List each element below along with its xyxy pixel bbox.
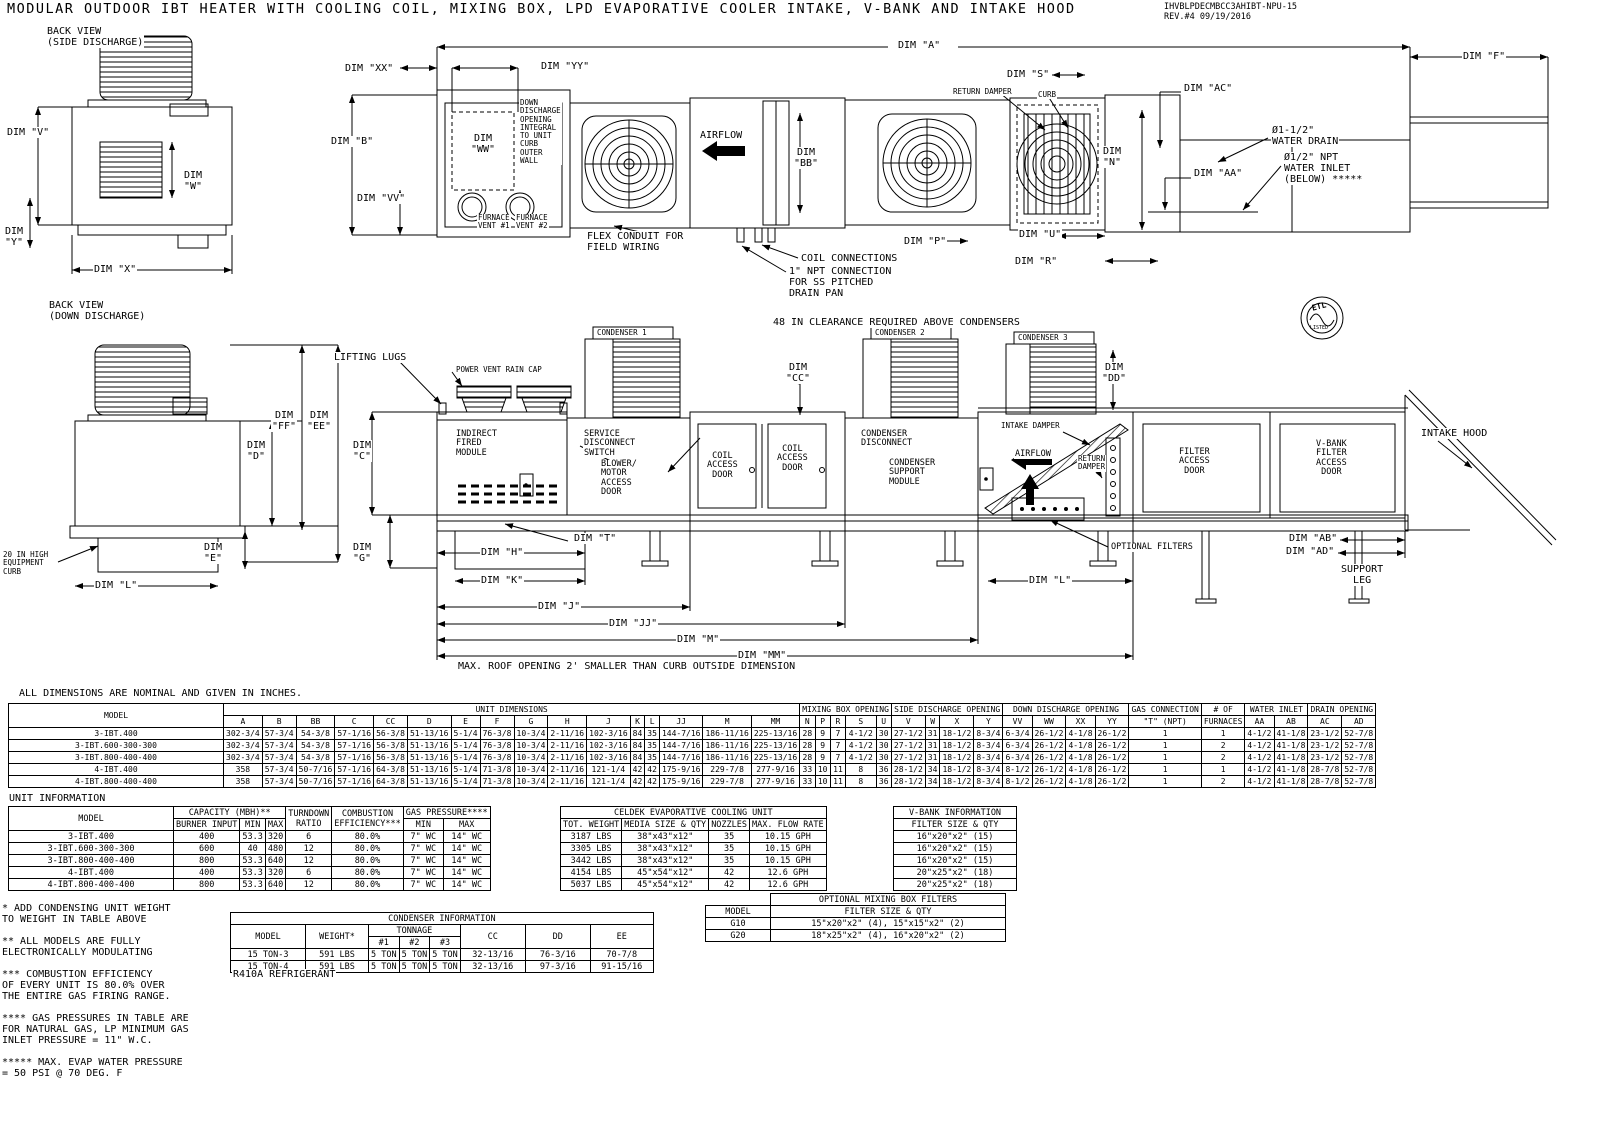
table-cell: 10.15 GPH <box>750 831 827 843</box>
table-cell: 33 <box>800 776 815 788</box>
gas-pressure-group-header: GAS PRESSURE**** <box>403 807 490 819</box>
column-header: K <box>630 716 645 728</box>
table-cell: 52-7/8 <box>1342 764 1376 776</box>
table-cell: 53.3 <box>240 867 265 879</box>
table-cell: 32-13/16 <box>460 949 525 961</box>
model-header: MODEL <box>231 925 306 949</box>
dim-aa-label: DIM "AA" <box>1193 168 1243 179</box>
curb-label: CURB <box>1037 91 1057 99</box>
table-cell: 35 <box>645 740 660 752</box>
table-cell: 42 <box>645 764 660 776</box>
mixing-box-filters-body: G1015"x20"x2" (4), 15"x15"x2" (2)G2018"x… <box>706 918 1006 942</box>
column-header: TOT. WEIGHT <box>561 819 622 831</box>
table-cell: 38"x43"x12" <box>622 855 709 867</box>
table-cell: 5037 LBS <box>561 879 622 891</box>
table-cell: 5-1/4 <box>451 740 480 752</box>
roof-opening-note: MAX. ROOF OPENING 2' SMALLER THAN CURB O… <box>457 661 796 672</box>
table-cell: 4-IBT.400 <box>9 867 174 879</box>
table-cell: 35 <box>645 728 660 740</box>
filter-size-header: FILTER SIZE & QTY <box>771 906 1006 918</box>
column-header: BB <box>296 716 335 728</box>
table-cell: 38"x43"x12" <box>622 831 709 843</box>
column-header: #1 <box>369 937 400 949</box>
column-header: Y <box>974 716 1003 728</box>
table-cell: 30 <box>876 752 891 764</box>
footnote-2: ** ALL MODELS ARE FULLY ELECTRONICALLY M… <box>2 936 237 958</box>
condenser-support-module-label: CONDENSER SUPPORT MODULE <box>888 459 936 487</box>
table-cell: 10-3/4 <box>514 764 548 776</box>
table-cell: 2-11/16 <box>548 740 587 752</box>
column-header: U <box>876 716 891 728</box>
dim-n-label: DIM "N" <box>1102 146 1122 168</box>
table-cell: 358 <box>224 764 263 776</box>
indirect-fired-module-label: INDIRECT FIRED MODULE <box>455 430 498 458</box>
vbank-access-door-label: V-BANK FILTER ACCESS DOOR <box>1315 440 1348 477</box>
table-cell: 10-3/4 <box>514 776 548 788</box>
table-cell: 18-1/2 <box>940 764 974 776</box>
table-cell: 12 <box>286 843 332 855</box>
flex-conduit-note: FLEX CONDUIT FOR FIELD WIRING <box>586 231 684 253</box>
water-inlet-note: Ø1/2" NPT WATER INLET (BELOW) ***** <box>1283 152 1363 185</box>
table-cell: 11 <box>830 776 845 788</box>
table-cell: 5 TON <box>369 949 400 961</box>
column-header: M <box>703 716 751 728</box>
table-cell: 14" WC <box>443 831 490 843</box>
table-cell: 4-1/8 <box>1066 740 1095 752</box>
celdek-table: CELDEK EVAPORATIVE COOLING UNIT TOT. WEI… <box>560 806 827 891</box>
table-cell: 28 <box>800 740 815 752</box>
condenser-2-label: CONDENSER 2 <box>874 329 926 337</box>
table-cell: 10 <box>815 764 830 776</box>
column-header: C <box>335 716 374 728</box>
table-cell: 175-9/16 <box>659 764 703 776</box>
unit-information-table: MODEL CAPACITY (MBH)** TURNDOWN RATIO CO… <box>8 806 491 891</box>
table-cell: 28 <box>800 728 815 740</box>
dim-g-label: DIM "G" <box>352 542 372 564</box>
table-cell: 4-1/8 <box>1066 752 1095 764</box>
table-cell: 80.0% <box>332 843 404 855</box>
column-header: AB <box>1274 716 1308 728</box>
table-cell: 4-1/2 <box>1245 752 1274 764</box>
water-inlet-group-header: WATER INLET <box>1245 704 1308 716</box>
table-cell: 57-3/4 <box>262 728 296 740</box>
table-row: 3-IBT.800-400-40080053.36401280.0%7" WC1… <box>9 855 491 867</box>
column-header: VV <box>1003 716 1032 728</box>
coil-access-door-1-label: COIL ACCESS DOOR <box>706 452 739 480</box>
table-cell: 71-3/8 <box>480 776 514 788</box>
celdek-body: 3187 LBS38"x43"x12"3510.15 GPH3305 LBS38… <box>561 831 827 891</box>
table-cell: 9 <box>815 752 830 764</box>
table-cell: 27-1/2 <box>891 740 925 752</box>
table-cell: 5 TON <box>430 961 461 973</box>
model-header: MODEL <box>9 704 224 728</box>
combustion-header: COMBUSTION EFFICIENCY*** <box>332 807 404 831</box>
vbank-title: V-BANK INFORMATION <box>894 807 1017 819</box>
table-cell: 102-3/16 <box>587 752 631 764</box>
table-cell: 4-1/2 <box>846 728 876 740</box>
table-cell: 6-3/4 <box>1003 740 1032 752</box>
table-cell: 144-7/16 <box>659 740 703 752</box>
table-cell: 18"x25"x2" (4), 16"x20"x2" (2) <box>771 930 1006 942</box>
unit-information-heading: UNIT INFORMATION <box>8 793 106 804</box>
dim-v-label: DIM "V" <box>6 127 50 138</box>
table-cell: 8-3/4 <box>974 728 1003 740</box>
dim-h-label: DIM "H" <box>480 547 524 558</box>
equipment-curb-note: 20 IN HIGH EQUIPMENT CURB <box>2 551 49 576</box>
table-cell: 600 <box>174 843 240 855</box>
table-cell: 4-1/2 <box>1245 764 1274 776</box>
table-cell: 5 TON <box>369 961 400 973</box>
drain-opening-group-header: DRAIN OPENING <box>1308 704 1376 716</box>
table-cell: 52-7/8 <box>1342 752 1376 764</box>
table-cell: 54-3/8 <box>296 728 335 740</box>
table-cell: 4-1/8 <box>1066 764 1095 776</box>
table-cell: 277-9/16 <box>751 776 799 788</box>
table-cell: 35 <box>709 855 750 867</box>
filter-access-door-label: FILTER ACCESS DOOR <box>1178 448 1211 476</box>
table-cell: 302-3/4 <box>224 740 263 752</box>
condenser-title: CONDENSER INFORMATION <box>231 913 654 925</box>
table-cell: 57-1/16 <box>335 740 374 752</box>
back-view-side-label: BACK VIEW (SIDE DISCHARGE) <box>46 26 144 48</box>
table-cell: 186-11/16 <box>703 752 751 764</box>
gas-connection-group-header: GAS CONNECTION <box>1129 704 1201 716</box>
table-row: 3-IBT.600-300-300600404801280.0%7" WC14"… <box>9 843 491 855</box>
down-discharge-note: DOWN DISCHARGE OPENING INTEGRAL TO UNIT … <box>519 99 562 165</box>
table-cell: 23-1/2 <box>1308 752 1342 764</box>
column-header: FURNACES <box>1201 716 1245 728</box>
table-cell: 8-3/4 <box>974 764 1003 776</box>
table-row: 3-IBT.600-300-300302-3/457-3/454-3/857-1… <box>9 740 1376 752</box>
table-cell: 2-11/16 <box>548 776 587 788</box>
table-cell: 12.6 GPH <box>750 867 827 879</box>
table-cell: 57-1/16 <box>335 764 374 776</box>
table-cell: 2-11/16 <box>548 752 587 764</box>
table-cell: 20"x25"x2" (18) <box>894 879 1017 891</box>
table-cell: 38"x43"x12" <box>622 843 709 855</box>
table-cell: 57-3/4 <box>262 764 296 776</box>
dim-vv-label: DIM "VV" <box>356 193 406 204</box>
coil-access-door-2-label: COIL ACCESS DOOR <box>776 445 809 473</box>
table-cell: 14" WC <box>443 879 490 891</box>
table-cell: 10.15 GPH <box>750 843 827 855</box>
table-cell: 4-1/8 <box>1066 776 1095 788</box>
column-header: F <box>480 716 514 728</box>
table-cell: 7 <box>830 728 845 740</box>
table-cell: 16"x20"x2" (15) <box>894 843 1017 855</box>
column-header: MAX <box>265 819 285 831</box>
table-cell: 80.0% <box>332 867 404 879</box>
sheet-title: MODULAR OUTDOOR IBT HEATER WITH COOLING … <box>6 2 1077 17</box>
dim-s-label: DIM "S" <box>1006 69 1050 80</box>
table-cell: 5 TON <box>430 949 461 961</box>
side-discharge-group-header: SIDE DISCHARGE OPENING <box>891 704 1003 716</box>
table-cell: 5-1/4 <box>451 752 480 764</box>
table-cell: 53.3 <box>240 831 265 843</box>
column-header: W <box>925 716 940 728</box>
airflow-label-mid: AIRFLOW <box>1014 450 1052 459</box>
dim-yy-label: DIM "YY" <box>540 61 590 72</box>
column-header: NOZZLES <box>709 819 750 831</box>
table-cell: 28-7/8 <box>1308 764 1342 776</box>
table-cell: 28-1/2 <box>891 776 925 788</box>
model-header: MODEL <box>706 906 771 918</box>
column-header: J <box>587 716 631 728</box>
mixing-box-group-header: MIXING BOX OPENING <box>800 704 892 716</box>
mixing-box-filters-table: OPTIONAL MIXING BOX FILTERS MODEL FILTER… <box>705 893 1006 942</box>
dim-mm-label: DIM "MM" <box>737 650 787 661</box>
column-header: AA <box>1245 716 1274 728</box>
document-number: IHVBLPDECMBCC3AHIBT-NPU-15 <box>1163 3 1298 12</box>
dim-l-right-label: DIM "L" <box>1028 575 1072 586</box>
table-cell: 7" WC <box>403 867 443 879</box>
table-cell: 76-3/8 <box>480 752 514 764</box>
table-cell: 5 TON <box>399 949 430 961</box>
intake-hood-label: INTAKE HOOD <box>1420 428 1488 439</box>
dim-cc-label: DIM "CC" <box>785 362 811 384</box>
table-cell: 229-7/8 <box>703 764 751 776</box>
table-row: 20"x25"x2" (18) <box>894 867 1017 879</box>
optional-filters-label: OPTIONAL FILTERS <box>1110 543 1194 552</box>
spacer-cell <box>706 894 771 906</box>
table-row: 16"x20"x2" (15) <box>894 855 1017 867</box>
column-header: H <box>548 716 587 728</box>
tonnage-group-header: TONNAGE <box>369 925 461 937</box>
table-cell: 76-3/8 <box>480 740 514 752</box>
condenser-disconnect-label: CONDENSER DISCONNECT <box>860 430 913 449</box>
footnote-4: **** GAS PRESSURES IN TABLE ARE FOR NATU… <box>2 1013 237 1046</box>
support-leg-label: SUPPORT LEG <box>1340 564 1384 586</box>
table-cell: 26-1/2 <box>1032 740 1066 752</box>
dim-m-label: DIM "M" <box>676 634 720 645</box>
column-header: YY <box>1095 716 1129 728</box>
column-header: XX <box>1066 716 1095 728</box>
table-cell: 10 <box>815 776 830 788</box>
dim-ad-label: DIM "AD" <box>1285 546 1335 557</box>
table-cell: 45"x54"x12" <box>622 879 709 891</box>
table-cell: 8 <box>846 764 876 776</box>
dim-t-label: DIM "T" <box>573 533 617 544</box>
table-row: 3305 LBS38"x43"x12"3510.15 GPH <box>561 843 827 855</box>
table-row: 3-IBT.40040053.3320680.0%7" WC14" WC <box>9 831 491 843</box>
table-cell: 57-3/4 <box>262 752 296 764</box>
table-cell: 6 <box>286 831 332 843</box>
drawing-line-art <box>0 0 1600 700</box>
table-cell: 30 <box>876 740 891 752</box>
table-cell: 3-IBT.800-400-400 <box>9 752 224 764</box>
table-cell: 6-3/4 <box>1003 728 1032 740</box>
table-cell: 7" WC <box>403 879 443 891</box>
table-cell: 51-13/16 <box>407 740 451 752</box>
table-cell: 28-7/8 <box>1308 776 1342 788</box>
table-cell: 42 <box>645 776 660 788</box>
dim-ac-label: DIM "AC" <box>1183 83 1233 94</box>
column-header: A <box>224 716 263 728</box>
table-row: 15 TON-3591 LBS5 TON5 TON5 TON32-13/1676… <box>231 949 654 961</box>
dim-k-label: DIM "K" <box>480 575 524 586</box>
table-cell: 50-7/16 <box>296 764 335 776</box>
celdek-title: CELDEK EVAPORATIVE COOLING UNIT <box>561 807 827 819</box>
column-header: "T" (NPT) <box>1129 716 1201 728</box>
table-cell: 51-13/16 <box>407 776 451 788</box>
table-cell: 225-13/16 <box>751 740 799 752</box>
table-cell: 80.0% <box>332 855 404 867</box>
table-cell: 4-1/8 <box>1066 728 1095 740</box>
dim-ee-label: DIM "EE" <box>306 410 332 432</box>
table-cell: 84 <box>630 740 645 752</box>
table-cell: 12 <box>286 879 332 891</box>
vbank-column-header: FILTER SIZE & QTY <box>894 819 1017 831</box>
table-cell: 1 <box>1129 728 1201 740</box>
table-cell: 8-3/4 <box>974 740 1003 752</box>
clearance-note: 48 IN CLEARANCE REQUIRED ABOVE CONDENSER… <box>772 317 1021 328</box>
column-header: MEDIA SIZE & QTY <box>622 819 709 831</box>
table-cell: 64-3/8 <box>374 764 408 776</box>
table-cell: 51-13/16 <box>407 752 451 764</box>
table-cell: 400 <box>174 831 240 843</box>
table-row: G1015"x20"x2" (4), 15"x15"x2" (2) <box>706 918 1006 930</box>
condenser-1-label: CONDENSER 1 <box>596 329 648 337</box>
table-cell: 70-7/8 <box>590 949 653 961</box>
table-cell: 3187 LBS <box>561 831 622 843</box>
dim-bb-label: DIM "BB" <box>793 147 819 169</box>
column-header: X <box>940 716 974 728</box>
table-cell: 35 <box>645 752 660 764</box>
table-cell: 28-1/2 <box>891 764 925 776</box>
table-row: 4-IBT.800-400-40080053.36401280.0%7" WC1… <box>9 879 491 891</box>
table-cell: 16"x20"x2" (15) <box>894 831 1017 843</box>
table-cell: 3-IBT.400 <box>9 831 174 843</box>
table-cell: 3305 LBS <box>561 843 622 855</box>
return-damper-label-top: RETURN DAMPER <box>952 88 1013 96</box>
ee-header: EE <box>590 925 653 949</box>
column-header: #3 <box>430 937 461 949</box>
dim-y-label: DIM "Y" <box>4 226 24 248</box>
coil-connections-note: COIL CONNECTIONS <box>800 253 898 264</box>
table-cell: 175-9/16 <box>659 776 703 788</box>
table-cell: 4-IBT.400 <box>9 764 224 776</box>
table-cell: 14" WC <box>443 843 490 855</box>
footnote-5: ***** MAX. EVAP WATER PRESSURE = 50 PSI … <box>2 1057 237 1079</box>
table-cell: 8 <box>846 776 876 788</box>
table-cell: 121-1/4 <box>587 764 631 776</box>
table-cell: 8-3/4 <box>974 752 1003 764</box>
table-cell: 144-7/16 <box>659 728 703 740</box>
table-cell: 229-7/8 <box>703 776 751 788</box>
table-cell: 84 <box>630 728 645 740</box>
condenser-table: CONDENSER INFORMATION MODEL WEIGHT* TONN… <box>230 912 654 973</box>
cc-header: CC <box>460 925 525 949</box>
table-cell: 20"x25"x2" (18) <box>894 867 1017 879</box>
table-cell: 26-1/2 <box>1032 764 1066 776</box>
table-cell: 41-1/8 <box>1274 764 1308 776</box>
table-cell: 56-3/8 <box>374 752 408 764</box>
table-cell: 186-11/16 <box>703 728 751 740</box>
table-cell: 5-1/4 <box>451 776 480 788</box>
table-cell: 32-13/16 <box>460 961 525 973</box>
table-cell: 1 <box>1129 764 1201 776</box>
column-header: #2 <box>399 937 430 949</box>
table-cell: 15"x20"x2" (4), 15"x15"x2" (2) <box>771 918 1006 930</box>
column-header: G <box>514 716 548 728</box>
table-cell: 31 <box>925 752 940 764</box>
table-cell: 302-3/4 <box>224 728 263 740</box>
refrigerant-note: R410A REFRIGERANT <box>232 969 336 980</box>
table-cell: 14" WC <box>443 867 490 879</box>
table-row: 3187 LBS38"x43"x12"3510.15 GPH <box>561 831 827 843</box>
table-cell: 26-1/2 <box>1032 776 1066 788</box>
table-cell: 800 <box>174 879 240 891</box>
dim-c-label: DIM "C" <box>352 440 372 462</box>
table-cell: 2-11/16 <box>548 764 587 776</box>
table-cell: 52-7/8 <box>1342 728 1376 740</box>
table-row: 4154 LBS45"x54"x12"4212.6 GPH <box>561 867 827 879</box>
column-header: MAX. FLOW RATE <box>750 819 827 831</box>
dd-header: DD <box>525 925 590 949</box>
furnace-vent-2-label: FURNACE VENT #2 <box>515 214 549 231</box>
table-cell: 15 TON-3 <box>231 949 306 961</box>
model-header: MODEL <box>9 807 174 831</box>
table-cell: 10-3/4 <box>514 752 548 764</box>
dim-w-label: DIM "W" <box>183 170 203 192</box>
mixing-box-filters-title: OPTIONAL MIXING BOX FILTERS <box>771 894 1006 906</box>
table-cell: 64-3/8 <box>374 776 408 788</box>
table-cell: 26-1/2 <box>1095 728 1129 740</box>
dim-ww-label: DIM "WW" <box>470 133 496 155</box>
table-cell: G10 <box>706 918 771 930</box>
column-header: MAX <box>443 819 490 831</box>
table-cell: 51-13/16 <box>407 728 451 740</box>
column-header: MIN <box>403 819 443 831</box>
table-cell: 7" WC <box>403 855 443 867</box>
table-cell: 3-IBT.600-300-300 <box>9 740 224 752</box>
table-cell: 84 <box>630 752 645 764</box>
table-cell: 30 <box>876 728 891 740</box>
table-cell: 591 LBS <box>306 949 369 961</box>
column-header: AD <box>1342 716 1376 728</box>
unit-dimensions-body: 3-IBT.400302-3/457-3/454-3/857-1/1656-3/… <box>9 728 1376 788</box>
table-cell: 53.3 <box>240 855 265 867</box>
table-cell: 36 <box>876 764 891 776</box>
table-cell: 14" WC <box>443 855 490 867</box>
table-cell: 91-15/16 <box>590 961 653 973</box>
table-cell: 97-3/16 <box>525 961 590 973</box>
lifting-lugs-label: LIFTING LUGS <box>333 352 407 363</box>
table-row: 16"x20"x2" (15) <box>894 831 1017 843</box>
table-cell: 3-IBT.400 <box>9 728 224 740</box>
table-cell: 102-3/16 <box>587 728 631 740</box>
table-cell: 400 <box>174 867 240 879</box>
table-cell: 71-3/8 <box>480 764 514 776</box>
unit-dimensions-group-header: UNIT DIMENSIONS <box>224 704 800 716</box>
table-cell: 10-3/4 <box>514 740 548 752</box>
table-row: 3-IBT.800-400-400302-3/457-3/454-3/857-1… <box>9 752 1376 764</box>
celdek-columns-row: TOT. WEIGHTMEDIA SIZE & QTYNOZZLESMAX. F… <box>561 819 827 831</box>
table-cell: 4-1/2 <box>1245 776 1274 788</box>
table-cell: 640 <box>265 855 285 867</box>
column-header: D <box>407 716 451 728</box>
column-header: R <box>830 716 845 728</box>
return-damper-label-mid: RETURN DAMPER <box>1077 455 1106 472</box>
table-cell: 80.0% <box>332 879 404 891</box>
capacity-group-header: CAPACITY (MBH)** <box>174 807 286 819</box>
dim-ff-label: DIM "FF" <box>271 410 297 432</box>
table-cell: 5-1/4 <box>451 728 480 740</box>
table-cell: 7" WC <box>403 831 443 843</box>
column-header: MM <box>751 716 799 728</box>
table-cell: 277-9/16 <box>751 764 799 776</box>
intake-damper-label: INTAKE DAMPER <box>1000 422 1061 430</box>
